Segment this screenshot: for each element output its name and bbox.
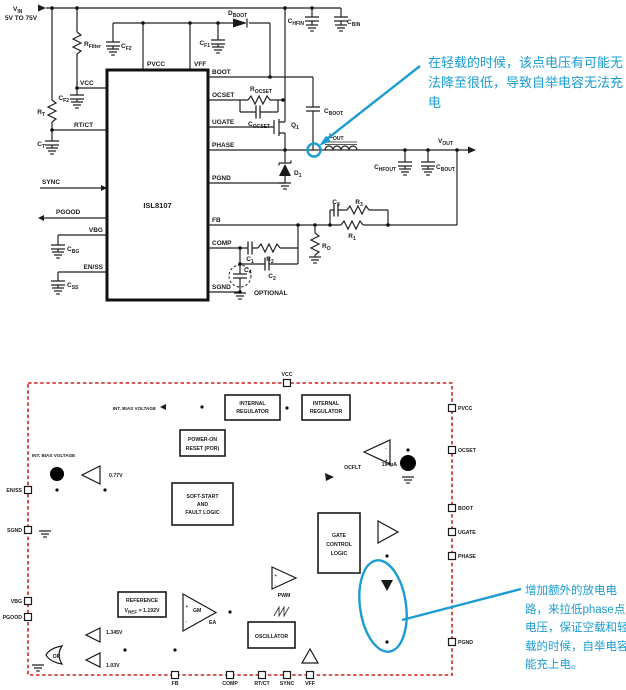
enable-threshold-label: 0.77V: [109, 473, 123, 479]
or-label: OR: [53, 654, 61, 660]
blk-pin-vff: VFF: [305, 681, 315, 687]
blk-pin-pvcc: PVCC: [458, 406, 473, 412]
soft-start-l3: FAULT LOGIC: [185, 510, 219, 516]
pin-terminal-vcc: [284, 380, 291, 387]
cf1-label: CF1: [199, 40, 210, 49]
pin-terminal-pgnd: [449, 639, 456, 646]
pgood-low-threshold: 1.03V: [106, 663, 120, 669]
rt-label: RT: [37, 109, 45, 118]
int-bias-arrow-icon: [160, 404, 166, 410]
gate-driver-icon: [378, 521, 398, 543]
circuit-figure: ISL8107: [0, 0, 626, 690]
dboot-label: DBOOT: [228, 10, 247, 19]
por-box: [180, 430, 225, 456]
gm-label: GM: [193, 608, 201, 614]
blk-pin-ugate: UGATE: [458, 530, 476, 536]
pgood-comparator-high-icon: [86, 628, 100, 642]
pin-label-sync: SYNC: [42, 179, 60, 186]
vin-range-label: 5V TO 75V: [5, 15, 38, 22]
pgood-high-threshold: 1.345V: [106, 630, 123, 636]
c2-label: C2: [268, 273, 276, 282]
application-schematic: ISL8107: [5, 5, 476, 301]
pin-label-rtct: RT/CT: [74, 122, 93, 129]
blk-pin-sgnd: SGND: [7, 528, 22, 534]
ocflt-plus-sign: +: [385, 458, 388, 463]
ic-name: ISL8107: [143, 201, 171, 210]
internal-regulator-1-l2: REGULATOR: [236, 409, 269, 415]
annotation-top-line3: 电: [428, 95, 441, 110]
css-label: CSS: [67, 282, 79, 291]
internal-regulator-1-box: [225, 395, 280, 420]
enable-comparator-icon: [82, 466, 100, 484]
gate-control-l2: CONTROL: [326, 542, 352, 548]
r3-label: R3: [355, 199, 363, 208]
pin-terminal-ugate: [449, 529, 456, 536]
pin-terminal-boot: [449, 505, 456, 512]
enss-current-source-icon: [50, 467, 64, 481]
cbout-label: CBOUT: [436, 164, 455, 173]
pin-terminal-phase: [449, 553, 456, 560]
pin-label-enss: EN/SS: [83, 264, 103, 271]
schematic-symbols: [38, 5, 476, 222]
pin-label-vcc: VCC: [80, 80, 94, 87]
cocset-label: COCSET: [248, 121, 270, 130]
annotation-bottom: 增加额外的放电电 路，来拉低phase点 电压，保证空载和轻 载的时候，自举电容…: [354, 557, 626, 671]
pin-label-ocset: OCSET: [212, 92, 234, 99]
pgood-comparator-low-icon: [86, 653, 100, 667]
cboot-label: CBOOT: [324, 108, 343, 117]
pin-label-pvcc: PVCC: [147, 61, 165, 68]
por-l1: POWER-ON: [188, 437, 217, 443]
ic-body: [107, 70, 208, 300]
soft-start-l2: AND: [197, 502, 208, 508]
int-bias-label-2: INT. BIAS VOLTAGE: [32, 453, 75, 458]
blk-pin-boot: BOOT: [458, 506, 474, 512]
blk-pin-pgnd: PGND: [458, 640, 473, 646]
dboot-diode-icon: [233, 19, 247, 28]
rfilter-label: RFilter: [84, 41, 101, 50]
internal-regulator-2-l1: INTERNAL: [313, 401, 340, 407]
pin-terminal-sync: [284, 672, 291, 679]
ro-label: RO: [322, 243, 331, 252]
vin-label: VIN: [13, 6, 23, 15]
d1-diode-icon: [279, 164, 291, 176]
cbin-label: CBIN: [347, 19, 361, 28]
annotation-bottom-line1: 增加额外的放电电: [525, 583, 617, 597]
pin-label-phase: PHASE: [212, 142, 235, 149]
sawtooth-icon: [274, 607, 289, 616]
blk-pin-ocset: OCSET: [458, 448, 477, 454]
oscillator-label: OSCILLATOR: [255, 634, 288, 640]
pin-terminal-pgood: [25, 614, 32, 621]
pin-label-pgnd: PGND: [212, 175, 231, 182]
ocset-current-source-icon: [400, 455, 416, 471]
chfout-label: CHFOUT: [374, 164, 396, 173]
pin-label-pgood: PGOOD: [56, 209, 81, 216]
por-l2: RESET (POR): [186, 446, 220, 452]
blk-pin-rtct: RT/CT: [254, 681, 270, 687]
pin-label-vff: VFF: [194, 61, 206, 68]
block-diagram: INTERNAL REGULATOR INTERNAL REGULATOR PO…: [3, 372, 477, 687]
pwm-label: PWM: [278, 593, 291, 599]
pin-label-sgnd: SGND: [212, 284, 231, 291]
internal-regulator-1-l1: INTERNAL: [239, 401, 266, 407]
gate-control-l1: GATE: [332, 533, 347, 539]
reference-l1: REFERENCE: [126, 598, 159, 604]
capacitors: [45, 17, 435, 285]
annotation-top: 在轻载的时候，该点电压有可能无 法降至很低，导致自举电容无法充 电: [308, 55, 624, 157]
vff-buffer-icon: [302, 649, 318, 663]
pin-terminal-pvcc: [449, 405, 456, 412]
annotation-bottom-line3: 电压，保证空载和轻: [525, 620, 626, 634]
blk-pin-vbg: VBG: [11, 599, 22, 605]
pin-terminal-enss: [25, 487, 32, 494]
cf2-top-label: CF2: [121, 43, 132, 52]
ocset-current-label: 194µA: [382, 462, 398, 468]
ea-plus-sign: +: [186, 604, 189, 609]
annotation-bottom-pointer-line: [402, 589, 521, 620]
discharge-circuit-highlight-ellipse: [354, 557, 412, 655]
r1-label: R1: [348, 233, 356, 242]
blk-pin-enss: EN/SS: [6, 488, 22, 494]
pin-terminal-comp: [227, 672, 234, 679]
pin-terminal-vbg: [25, 598, 32, 605]
pin-label-boot: BOOT: [212, 69, 231, 76]
annotation-top-line1: 在轻载的时候，该点电压有可能无: [428, 55, 623, 70]
r2-label: R2: [266, 256, 274, 265]
pin-label-ugate: UGATE: [212, 119, 235, 126]
switch-arrow-icon: [325, 473, 334, 481]
annotation-top-pointer-line: [327, 66, 420, 139]
blk-pin-vcc: VCC: [282, 372, 293, 378]
screenshot-root: ISL8107: [0, 0, 626, 690]
optional-label: OPTIONAL: [254, 290, 288, 297]
pin-label-fb: FB: [212, 217, 221, 224]
blk-pin-fb: FB: [172, 681, 179, 687]
internal-regulator-2-box: [302, 395, 350, 420]
ea-label: EA: [209, 620, 216, 626]
internal-regulator-2-l2: REGULATOR: [310, 409, 343, 415]
inductor-core: [325, 142, 357, 145]
annotation-bottom-line2: 路，来拉低phase点: [525, 602, 625, 616]
annotation-bottom-line4: 载的时候，自举电容: [525, 639, 626, 653]
pgood-arrow-icon: [38, 215, 44, 221]
annotation-top-line2: 法降至很低，导致自举电容无法充: [428, 75, 623, 90]
pin-terminal-fb: [172, 672, 179, 679]
chfin-label: CHFIN: [288, 18, 305, 27]
d1-label: D1: [294, 170, 302, 179]
reference-value: VREF = 1.192V: [124, 608, 160, 614]
q1-label: Q1: [291, 122, 299, 131]
vout-label: VOUT: [438, 138, 453, 147]
ocflt-label: OCFLT: [344, 465, 362, 471]
rocset-label: ROCSET: [250, 86, 272, 95]
blk-pin-comp: COMP: [222, 681, 238, 687]
discharge-diode-icon: [381, 580, 393, 591]
pin-label-vbg: VBG: [89, 227, 103, 234]
gate-control-l3: LOGIC: [331, 551, 348, 557]
pin-terminal-vff: [307, 672, 314, 679]
pin-terminal-rtct: [259, 672, 266, 679]
soft-start-l1: SOFT-START: [186, 494, 219, 500]
pin-terminal-sgnd: [25, 527, 32, 534]
vin-arrow-icon: [38, 5, 46, 12]
pwm-plus-sign: +: [275, 573, 278, 578]
vout-arrow-icon: [468, 147, 476, 154]
pin-terminal-ocset: [449, 447, 456, 454]
blk-pin-pgood: PGOOD: [3, 615, 23, 621]
int-bias-label-1: INT. BIAS VOLTAGE: [113, 406, 156, 411]
blk-pin-sync: SYNC: [280, 681, 295, 687]
cf2-left-label: CF2: [58, 95, 69, 104]
cbg-label: CBG: [67, 246, 79, 255]
ct-label: CT: [37, 141, 45, 150]
blk-pin-phase: PHASE: [458, 554, 476, 560]
annotation-bottom-line5: 能充上电。: [525, 657, 583, 671]
pin-label-comp: COMP: [212, 240, 232, 247]
